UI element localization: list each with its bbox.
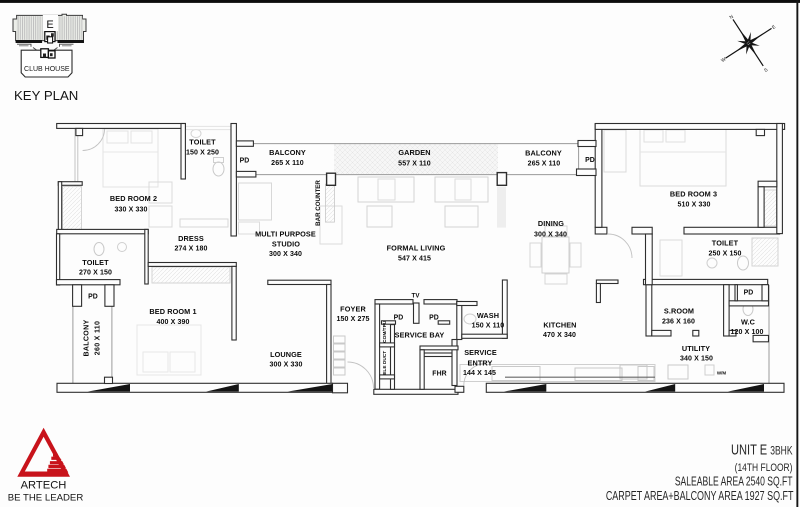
svg-text:FOYER: FOYER [340,305,366,314]
svg-text:TOILET: TOILET [82,258,109,267]
svg-text:CLUB HOUSE: CLUB HOUSE [24,66,70,73]
svg-text:COM/TPU: COM/TPU [382,320,388,343]
svg-text:MULTI PURPOSE: MULTI PURPOSE [255,230,316,239]
svg-text:SALEABLE AREA 2540 SQ.FT: SALEABLE AREA 2540 SQ.FT [675,475,793,489]
svg-text:150 X 250: 150 X 250 [186,150,219,157]
svg-text:260 X 110: 260 X 110 [95,321,102,355]
svg-text:144 X 145: 144 X 145 [463,370,496,377]
svg-text:150 X 275: 150 X 275 [336,316,369,323]
svg-text:340 X 150: 340 X 150 [680,356,713,363]
svg-text:KEY PLAN: KEY PLAN [14,88,78,103]
svg-text:TOILET: TOILET [189,138,216,147]
svg-text:ELE DUCT: ELE DUCT [382,351,388,375]
svg-text:(14TH FLOOR): (14TH FLOOR) [735,462,793,474]
svg-text:CARPET AREA+BALCONY AREA 1927: CARPET AREA+BALCONY AREA 1927 SQ.FT [606,490,794,504]
svg-text:FHR: FHR [432,371,446,378]
svg-text:150 X 110: 150 X 110 [472,323,505,330]
svg-text:510 X 330: 510 X 330 [677,202,710,209]
svg-text:300 X 340: 300 X 340 [269,251,302,258]
svg-text:BALCONY: BALCONY [269,148,306,157]
svg-text:PD: PD [394,315,404,322]
svg-text:250 X 150: 250 X 150 [708,251,741,258]
svg-text:557 X 110: 557 X 110 [398,161,431,168]
svg-text:BED ROOM 2: BED ROOM 2 [110,194,157,203]
svg-text:DRESS: DRESS [178,234,204,243]
svg-text:KITCHEN: KITCHEN [543,321,576,330]
svg-text:400 X 390: 400 X 390 [156,319,189,326]
svg-text:WASH: WASH [477,311,499,320]
svg-text:BAR COUNTER: BAR COUNTER [315,180,322,226]
svg-text:E: E [46,19,53,31]
svg-text:UTILITY: UTILITY [682,344,710,353]
svg-text:DINING: DINING [538,219,564,228]
svg-text:GARDEN: GARDEN [398,148,430,157]
svg-text:SERVICE: SERVICE [464,348,497,357]
svg-text:BED ROOM 3: BED ROOM 3 [670,190,717,199]
svg-text:470 X 340: 470 X 340 [543,332,576,339]
svg-text:330 X 330: 330 X 330 [114,207,147,214]
svg-text:PD: PD [744,290,754,297]
svg-text:BED ROOM 1: BED ROOM 1 [149,307,196,316]
svg-text:FORMAL LIVING: FORMAL LIVING [387,244,446,253]
svg-text:BE THE LEADER: BE THE LEADER [8,493,84,504]
svg-text:STUDIO: STUDIO [272,240,300,249]
svg-text:W.C: W.C [741,318,756,327]
svg-text:ARTECH: ARTECH [21,479,67,491]
svg-text:265 X 110: 265 X 110 [528,161,561,168]
svg-text:S.ROOM: S.ROOM [664,307,694,316]
svg-text:PD: PD [429,315,439,322]
svg-text:274 X 180: 274 X 180 [174,246,207,253]
svg-text:BALCONY: BALCONY [84,320,91,357]
svg-text:TV: TV [411,293,420,300]
svg-text:ENTRY: ENTRY [468,359,493,368]
svg-text:PD: PD [585,157,595,164]
svg-text:W/M: W/M [717,371,726,376]
svg-text:270 X 150: 270 X 150 [79,270,112,277]
svg-text:PD: PD [88,294,98,301]
svg-text:265 X 110: 265 X 110 [271,160,304,167]
svg-text:BALCONY: BALCONY [525,149,562,158]
svg-text:TOILET: TOILET [712,239,739,248]
svg-text:120 X 100: 120 X 100 [730,329,763,336]
svg-text:547 X 415: 547 X 415 [398,256,431,263]
svg-text:236 X 160: 236 X 160 [662,319,695,326]
svg-text:SERVICE BAY: SERVICE BAY [395,331,445,340]
svg-text:300 X 330: 300 X 330 [269,362,302,369]
svg-text:LOUNGE: LOUNGE [270,350,302,359]
svg-text:300 X 340: 300 X 340 [534,232,567,239]
svg-text:PD: PD [240,158,250,165]
